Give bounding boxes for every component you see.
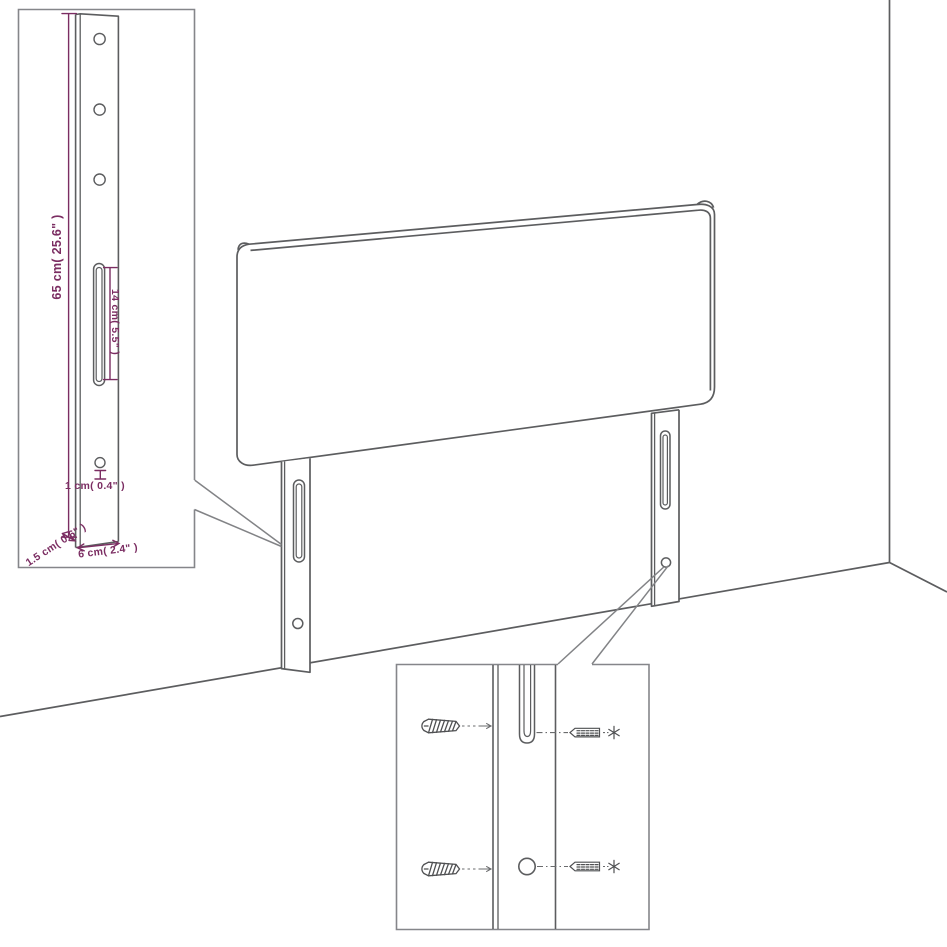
diagram-line-art: [0, 0, 947, 947]
dimension-diagram: 65 cm( 25.6" ) 14 cm( 5.5" ) 1 cm( 0.4" …: [0, 0, 947, 947]
dimension-label-hole-diameter: 1 cm( 0.4" ): [65, 480, 125, 492]
dimension-label-height: 65 cm( 25.6" ): [50, 214, 64, 299]
headboard-panel: [237, 201, 715, 465]
headboard-right-leg: [652, 410, 680, 607]
headboard-left-leg: [282, 458, 311, 672]
callout-wedge-left: [195, 480, 282, 547]
dimension-label-slot-length: 14 cm( 5.5" ): [109, 289, 121, 355]
panel-front-face: [237, 204, 715, 465]
floor-line-right: [890, 563, 947, 593]
screw-mounting-inset: [397, 665, 650, 930]
